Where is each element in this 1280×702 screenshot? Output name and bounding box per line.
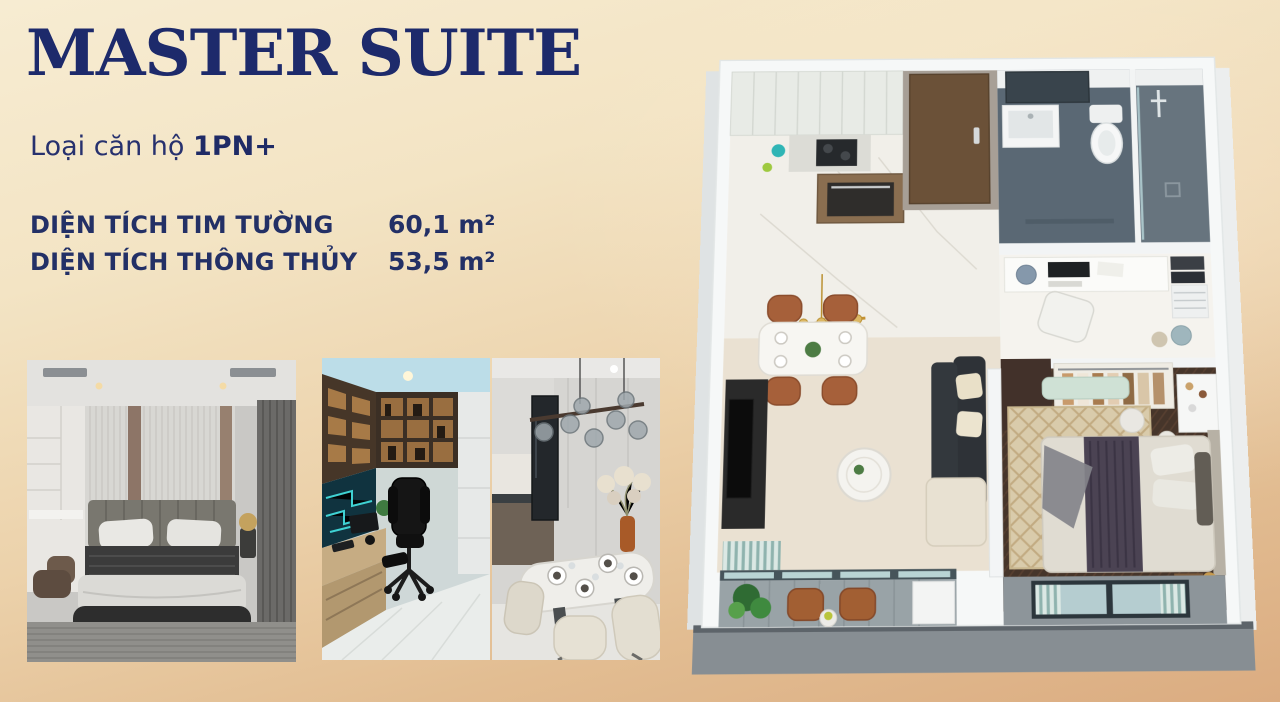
shower [1130,69,1211,244]
bathroom-mirror [1006,72,1089,103]
area-row-gross: DIỆN TÍCH TIM TƯỜNG 60,1 m² [30,206,500,243]
unit-type: Loại căn hộ 1PN+ [30,131,277,162]
bedroom-window [1003,575,1227,625]
round-pouf [1119,408,1144,432]
ottoman [33,570,71,598]
pouf [1171,326,1192,346]
bedroom-photo [27,360,296,662]
tv-console [721,379,768,529]
study-nook [999,253,1215,359]
area-value: 53,5 m² [388,247,495,276]
back-shelves [376,392,458,468]
white-cabinet [458,392,490,574]
entrance-door [903,70,999,210]
bedside-lamp [239,513,257,558]
page-title: MASTER SUITE [26,20,666,87]
floor-plan-3d [685,46,1260,698]
mint-bench [1042,377,1129,399]
left-shelves [322,374,376,484]
unit-type-value: 1PN+ [193,131,277,162]
partition-wall [988,369,1004,577]
page-background: MASTER SUITE Loại căn hộ 1PN+ DIỆN TÍCH … [0,0,1280,702]
curtain [257,400,296,626]
area-value: 60,1 m² [388,210,495,239]
office-photo [322,358,490,660]
balcony-cabinet [913,581,955,623]
sliding-glass-door [720,569,957,581]
partition-wall [999,242,1211,255]
dining-photo [492,358,660,660]
ceiling [27,360,296,406]
unit-type-label: Loại căn hộ [30,131,184,162]
bed [1041,430,1226,577]
oven-cabinet [817,174,904,223]
area-label: DIỆN TÍCH TIM TƯỜNG [30,211,388,239]
area-label: DIỆN TÍCH THÔNG THỦY [30,248,388,276]
balcony-armchair [840,588,876,620]
shelf-boxes [1170,256,1208,318]
chaise [926,478,986,546]
coffee-table [837,448,891,501]
shelf-vanity [27,406,85,592]
kitchen-corner [492,378,558,565]
rug-floor [27,622,296,662]
area-table: DIỆN TÍCH TIM TƯỜNG 60,1 m² DIỆN TÍCH TH… [30,206,500,280]
sofa [926,356,987,546]
bedroom [1001,358,1228,612]
cooktop [816,139,857,166]
bed [73,500,251,636]
area-row-net: DIỆN TÍCH THÔNG THỦY 53,5 m² [30,243,500,280]
bathroom [997,69,1135,243]
study-desk [1004,257,1168,292]
desk-monitor [1048,262,1090,278]
toilet [1089,105,1124,164]
balcony-armchair [788,589,824,621]
sink [1002,105,1059,147]
bottom-wall-face [692,621,1256,674]
sheer-curtain [722,541,781,571]
